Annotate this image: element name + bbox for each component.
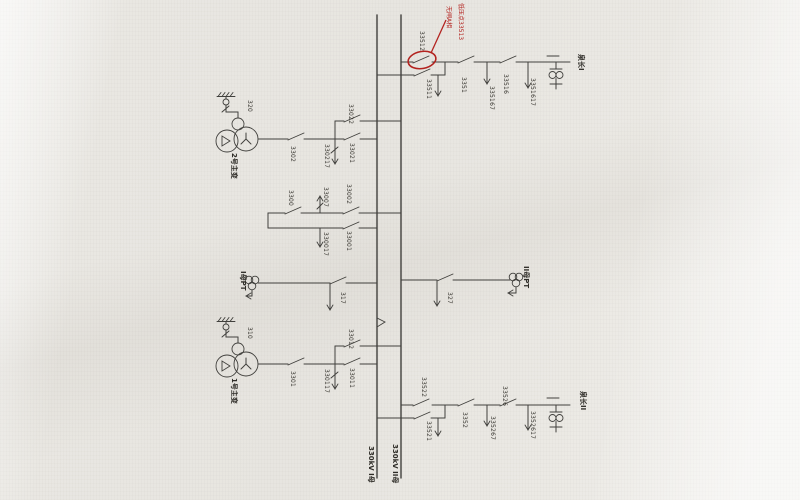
line-bay-ii-symbols — [377, 398, 570, 436]
pt-bay-i-symbols — [245, 276, 377, 310]
earth-330217-label: 330217 — [323, 144, 330, 168]
pt-bay-ii-symbols — [401, 273, 523, 306]
neutral-310-label: 310 — [246, 327, 253, 339]
line-i-name-label: 泉长I — [577, 54, 586, 71]
breaker-3300-label: 3300 — [287, 190, 294, 206]
earth-330017-label: 330017 — [322, 232, 329, 256]
disconnector-33521-label: 33521 — [425, 421, 432, 441]
red-note-line1: 低压点33513 — [457, 3, 465, 40]
earth-330117-label: 330117 — [323, 369, 330, 393]
single-line-diagram: 330kV I母 330kV II母 33512 3351 — [0, 0, 800, 500]
pt-ii-name-label: II母PT — [522, 266, 531, 288]
disconnector-33512-label: 33512 — [418, 31, 425, 51]
transformer-2-name-label: 2号主变 — [230, 153, 239, 179]
earth-335267-label: 335267 — [489, 416, 496, 440]
breaker-3301-label: 3301 — [289, 371, 296, 387]
earth-335167-label: 335167 — [488, 86, 495, 110]
breaker-3351-label: 3351 — [460, 77, 467, 93]
disconnector-33522-label: 33522 — [420, 377, 427, 397]
disconnector-33526-label: 33526 — [501, 386, 508, 406]
transformer-1-name-label: 1号主变 — [230, 378, 239, 404]
earth-3351617-label: 3351617 — [529, 78, 536, 106]
disconnector-33021-label: 33021 — [348, 143, 355, 163]
disconnector-33002-label: 33002 — [345, 184, 352, 204]
disconnector-33001-label: 33001 — [345, 231, 352, 251]
disconnector-33511-label: 33511 — [425, 79, 432, 99]
bus-ii-label: 330kV II母 — [391, 444, 400, 483]
disconnector-327-label: 327 — [446, 292, 453, 304]
triangle-marker — [377, 318, 385, 327]
pt-i-name-label: I母PT — [239, 271, 248, 291]
disconnector-33516-label: 33516 — [502, 74, 509, 94]
line-bay-i-symbols — [377, 56, 570, 96]
bus-i-label: 330kV I母 — [367, 446, 376, 483]
red-note-line2: 无闸A相 — [445, 6, 453, 28]
red-annotation: 低压点33513 无闸A相 — [407, 3, 465, 71]
disconnector-33011-label: 33011 — [348, 368, 355, 388]
neutral-320-label: 320 — [246, 100, 253, 112]
disconnector-33012-label: 33012 — [347, 329, 354, 349]
disconnector-33022-label: 33022 — [347, 104, 354, 124]
wiring-diagram-photo: 330kV I母 330kV II母 33512 3351 — [0, 0, 800, 500]
disconnector-317-label: 317 — [339, 292, 346, 304]
line-ii-name-label: 泉长II — [579, 391, 588, 410]
earth-33007-label: 33007 — [322, 187, 329, 207]
earth-3352617-label: 3352617 — [529, 411, 536, 439]
breaker-3352-label: 3352 — [461, 412, 468, 428]
breaker-3302-label: 3302 — [289, 146, 296, 162]
